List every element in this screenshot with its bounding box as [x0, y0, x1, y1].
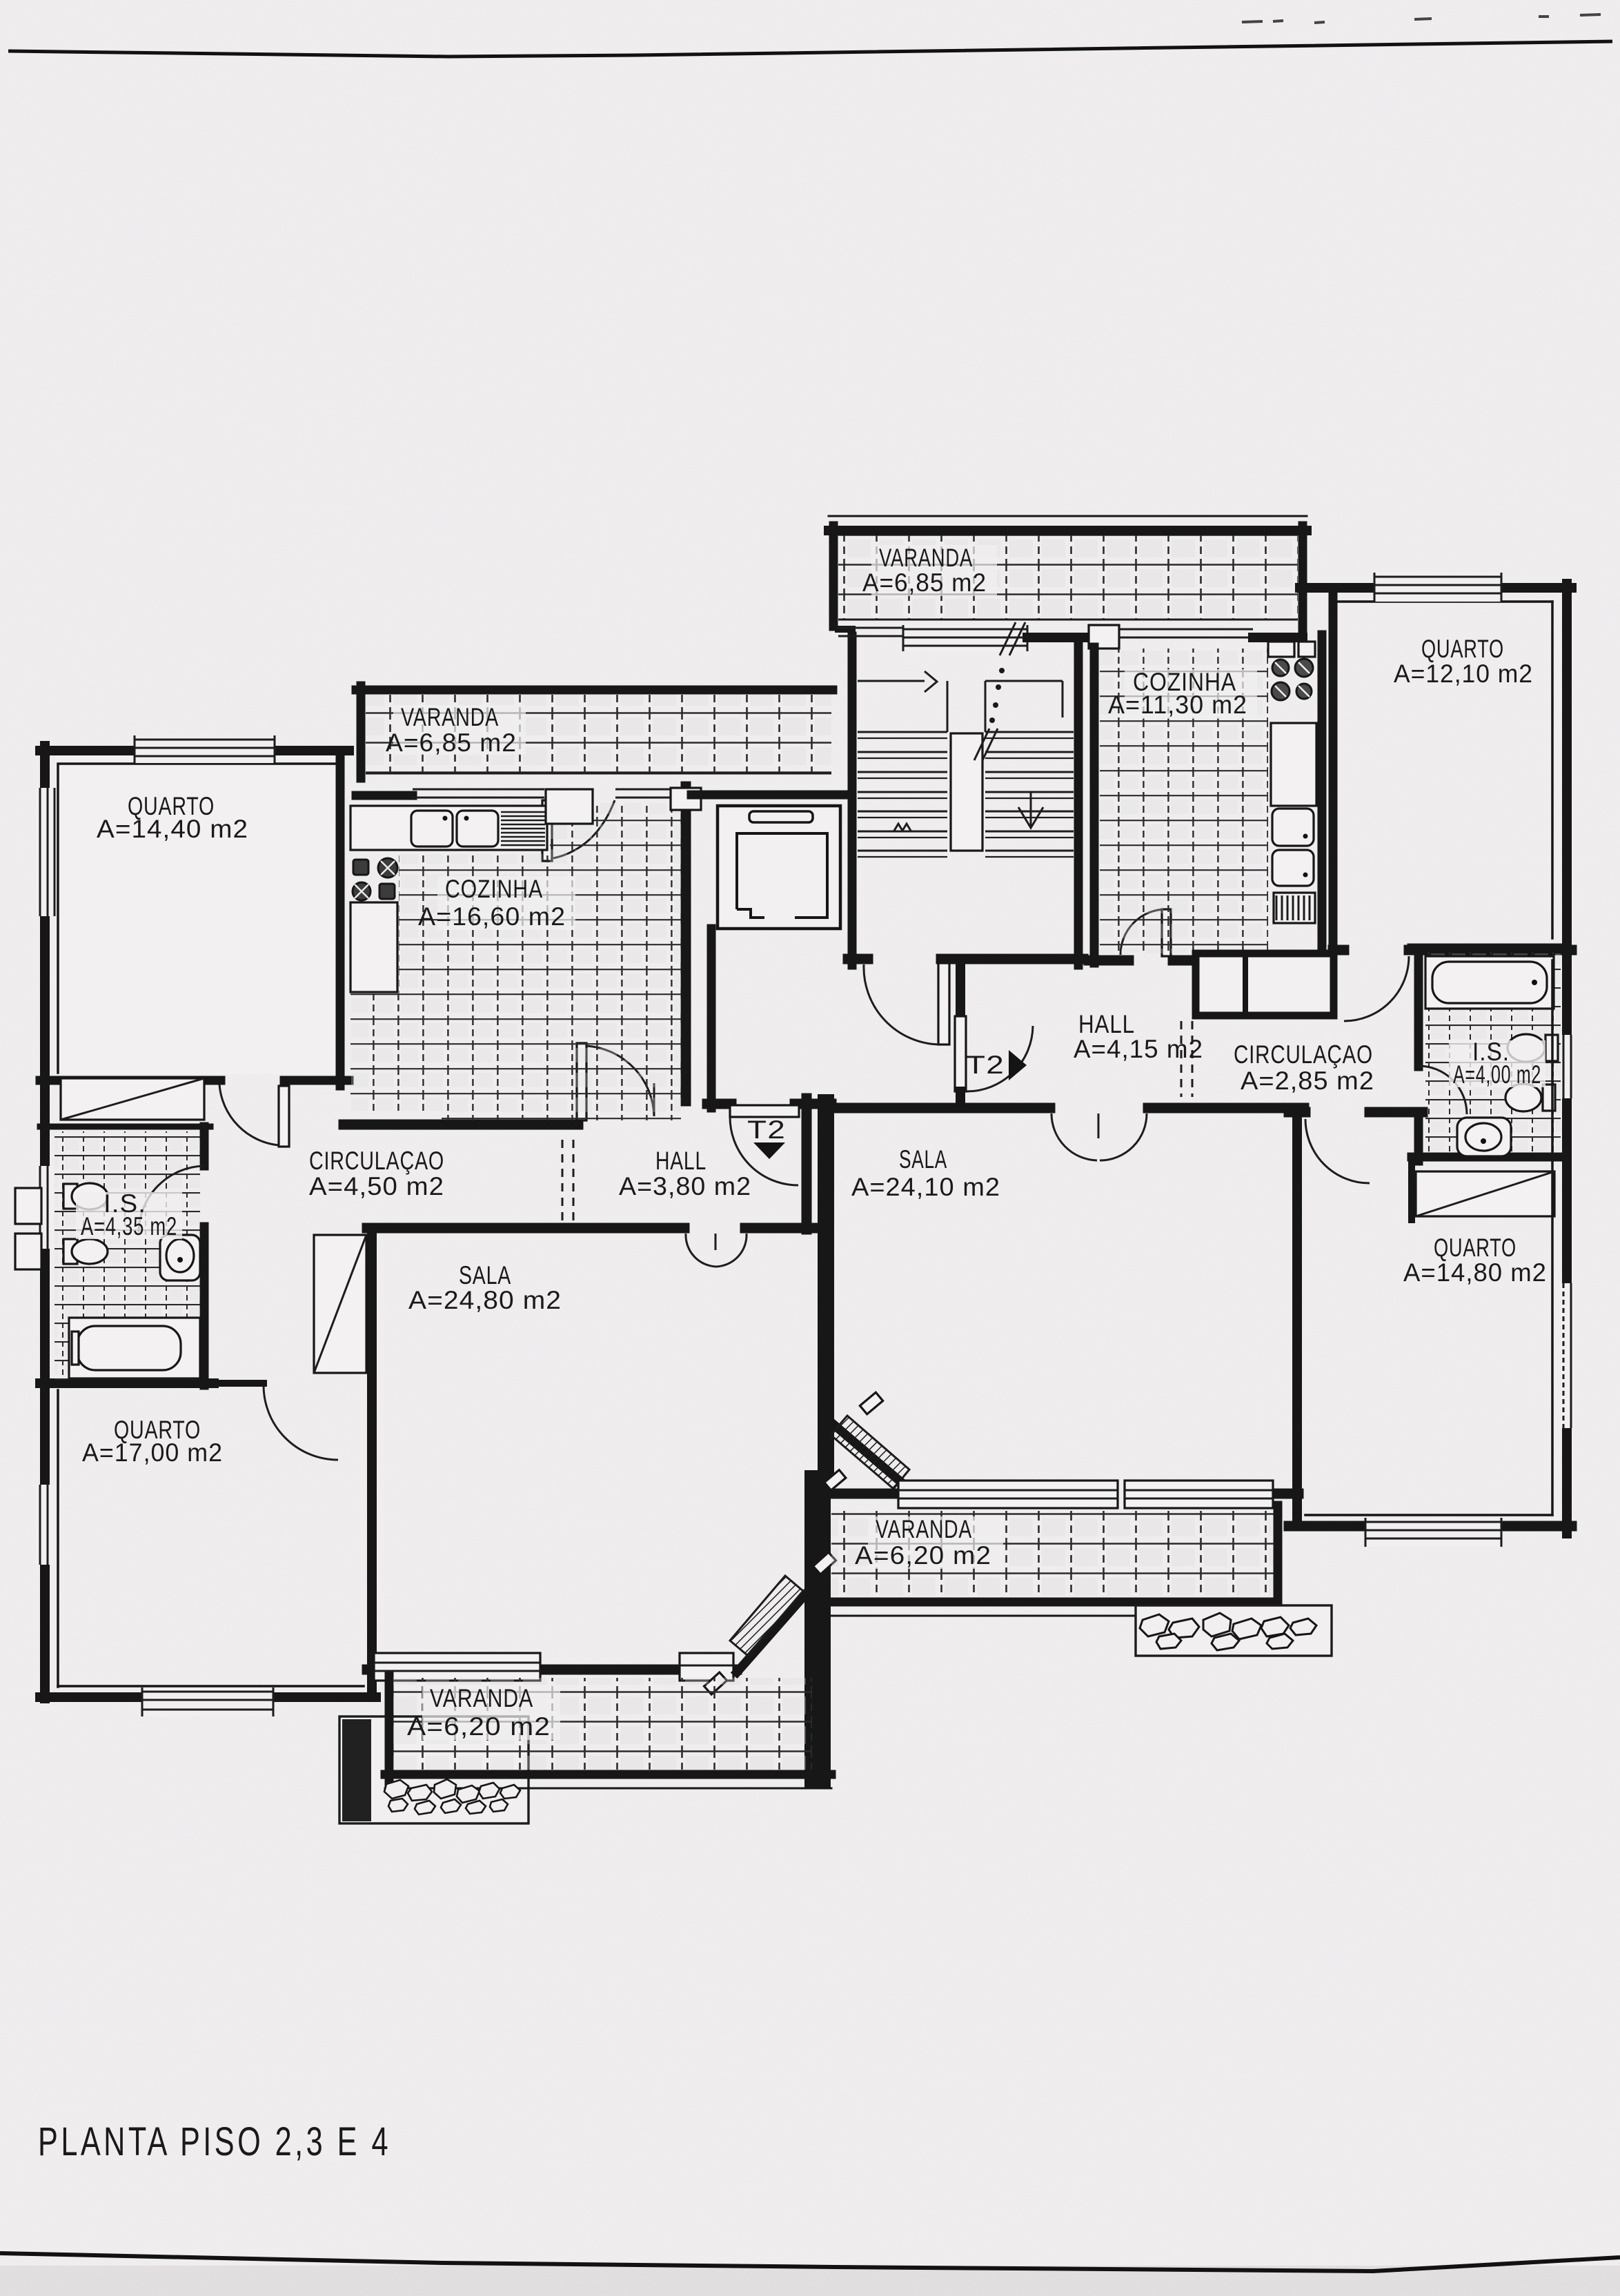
svg-text:VARANDA: VARANDA: [876, 1515, 972, 1543]
svg-text:VARANDA: VARANDA: [879, 544, 973, 572]
svg-text:A=6,20 m2: A=6,20 m2: [855, 1541, 991, 1570]
svg-text:SALA: SALA: [899, 1145, 947, 1174]
svg-text:A=4,00 m2: A=4,00 m2: [1453, 1060, 1541, 1089]
svg-text:A=11,30 m2: A=11,30 m2: [1108, 691, 1247, 719]
svg-text:A=12,10 m2: A=12,10 m2: [1394, 660, 1533, 688]
svg-text:A=14,80 m2: A=14,80 m2: [1403, 1258, 1547, 1287]
svg-text:A=6,85 m2: A=6,85 m2: [862, 568, 987, 597]
svg-text:VARANDA: VARANDA: [401, 703, 499, 731]
svg-text:QUARTO: QUARTO: [1421, 635, 1504, 663]
svg-text:PLANTA PISO 2,3 E 4: PLANTA PISO 2,3 E 4: [38, 2119, 391, 2164]
svg-text:A=6,85 m2: A=6,85 m2: [386, 729, 517, 757]
svg-text:HALL: HALL: [1078, 1010, 1135, 1038]
svg-text:QUARTO: QUARTO: [1434, 1234, 1517, 1262]
svg-text:A=3,80 m2: A=3,80 m2: [619, 1172, 751, 1200]
svg-text:A=4,50 m2: A=4,50 m2: [309, 1172, 444, 1200]
svg-text:A=4,35 m2: A=4,35 m2: [81, 1212, 177, 1240]
svg-text:HALL: HALL: [655, 1147, 707, 1175]
svg-text:A=14,40 m2: A=14,40 m2: [97, 815, 248, 843]
svg-text:A=6,20 m2: A=6,20 m2: [407, 1712, 551, 1741]
svg-text:T2: T2: [966, 1051, 1005, 1079]
svg-text:A=2,85 m2: A=2,85 m2: [1241, 1067, 1374, 1095]
svg-text:COZINHA: COZINHA: [445, 875, 543, 903]
svg-text:A=24,10 m2: A=24,10 m2: [851, 1173, 1000, 1201]
svg-text:T2: T2: [747, 1116, 786, 1144]
svg-text:CIRCULAÇAO: CIRCULAÇAO: [1234, 1040, 1373, 1069]
svg-text:VARANDA: VARANDA: [430, 1684, 533, 1712]
svg-text:A=4,15 m2: A=4,15 m2: [1074, 1035, 1203, 1063]
svg-text:A=17,00 m2: A=17,00 m2: [82, 1438, 223, 1467]
svg-text:CIRCULAÇAO: CIRCULAÇAO: [309, 1147, 444, 1175]
svg-text:A=16,60 m2: A=16,60 m2: [418, 902, 566, 931]
svg-text:SALA: SALA: [459, 1261, 511, 1289]
svg-text:A=24,80 m2: A=24,80 m2: [408, 1286, 562, 1314]
